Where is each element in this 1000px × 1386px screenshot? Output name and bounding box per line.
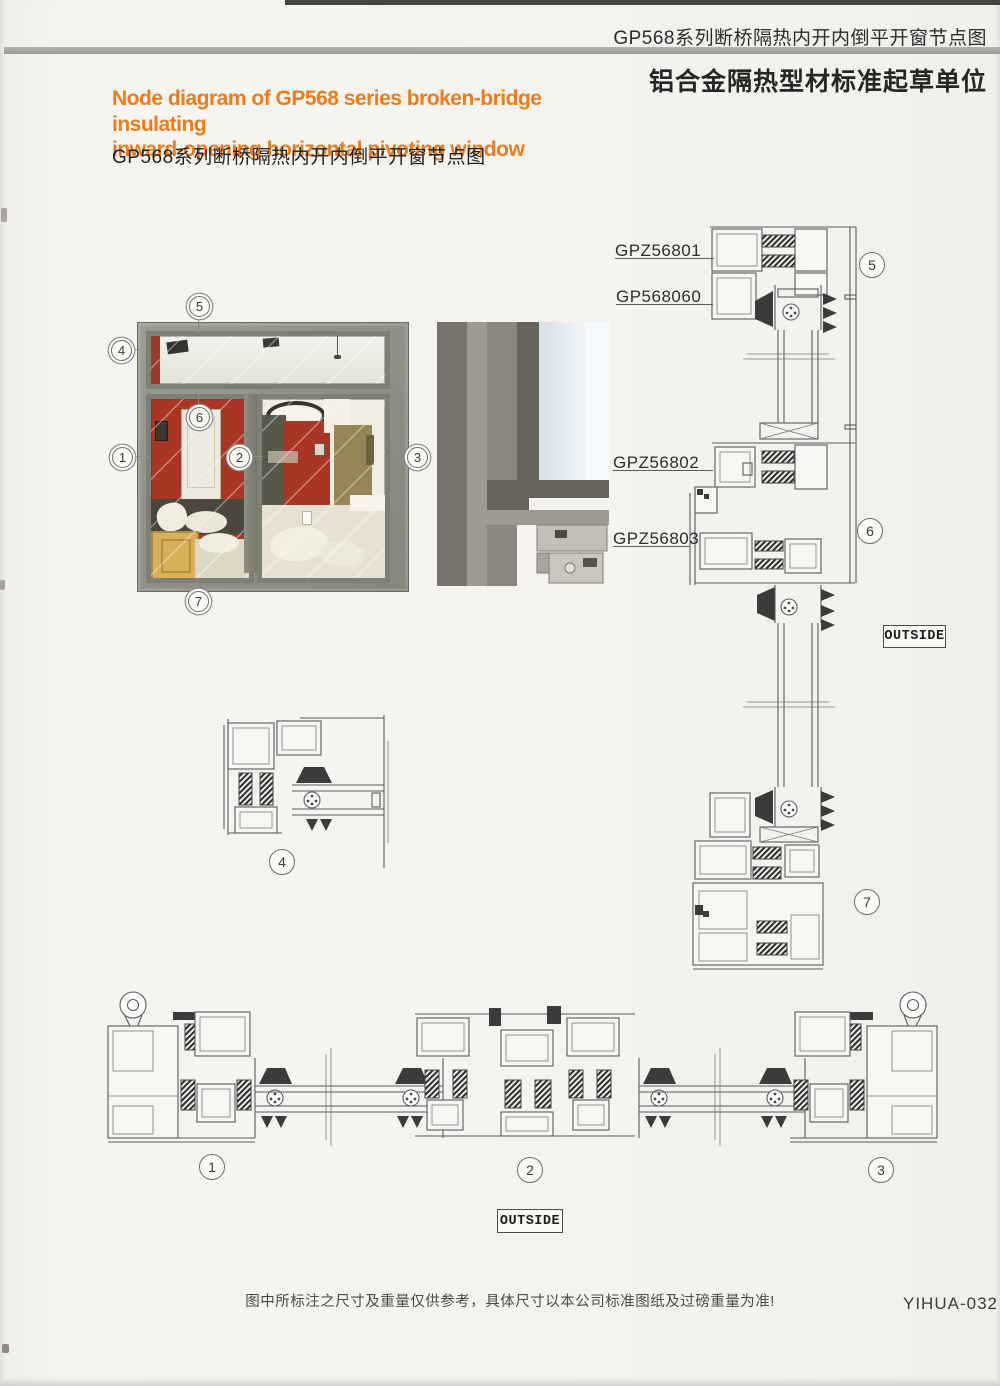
footer-note: 图中所标注之尺寸及重量仅供参考，具体尺寸以本公司标准图纸及过磅重量为准! bbox=[240, 1290, 780, 1311]
photo-red-wall bbox=[284, 421, 330, 507]
photo-callout-2: 2 bbox=[229, 447, 250, 468]
photo-cup bbox=[302, 511, 312, 525]
photo-cushion bbox=[185, 511, 227, 533]
photo-wall-frames bbox=[268, 451, 298, 463]
photo-callout-7: 7 bbox=[188, 591, 209, 612]
section-callout-7: 7 bbox=[854, 889, 880, 915]
section-callout-2: 2 bbox=[517, 1157, 543, 1183]
header-divider bbox=[4, 47, 1000, 54]
section-callout-1: 1 bbox=[199, 1154, 225, 1180]
section-callout-4: 4 bbox=[269, 849, 295, 875]
paper-edge-mark bbox=[2, 1344, 9, 1353]
outside-label-right: OUTSIDE bbox=[883, 625, 946, 648]
photo-callout-5: 5 bbox=[189, 296, 210, 317]
leader-line bbox=[198, 316, 199, 334]
catalog-page: GP568系列断桥隔热内开内倒平开窗节点图 铝合金隔热型材标准起草单位 Node… bbox=[0, 0, 1000, 1386]
photo-callout-3: 3 bbox=[407, 447, 428, 468]
photo-red-wall-sliver bbox=[151, 336, 160, 384]
window-photo bbox=[137, 322, 409, 592]
photo-lamp-wire bbox=[337, 336, 338, 356]
page-code: YIHUA-032 bbox=[903, 1294, 998, 1314]
detail-4-drawing bbox=[222, 713, 397, 878]
part-label-line bbox=[616, 304, 713, 305]
photo-small-picture bbox=[314, 443, 325, 456]
photo-right-pane bbox=[257, 394, 390, 583]
photo-ceiling-light bbox=[263, 337, 280, 347]
photo-cushion bbox=[199, 533, 239, 553]
photo-callout-1: 1 bbox=[112, 447, 133, 468]
photo-picture-frame bbox=[155, 421, 168, 441]
paper-edge-mark bbox=[1, 208, 7, 222]
org-label-cn: 铝合金隔热型材标准起草单位 bbox=[649, 62, 987, 98]
photo-bench bbox=[350, 495, 385, 511]
section-callout-6: 6 bbox=[857, 518, 883, 544]
photo-wood-chair bbox=[151, 531, 199, 582]
page-top-edge bbox=[285, 0, 1000, 5]
leader-line bbox=[132, 456, 150, 457]
page-title-cn: GP568系列断桥隔热内开内倒平开窗节点图 bbox=[112, 142, 486, 169]
corner-render-graphic bbox=[437, 322, 609, 586]
photo-ceiling-light bbox=[166, 340, 188, 355]
photo-chair-back bbox=[161, 539, 191, 573]
photo-callout-4: 4 bbox=[111, 340, 132, 361]
photo-wardrobe-edge bbox=[366, 435, 374, 465]
photo-callout-6: 6 bbox=[189, 407, 210, 428]
part-label-line bbox=[613, 546, 690, 547]
section-callout-3: 3 bbox=[868, 1157, 894, 1183]
section-callout-5: 5 bbox=[859, 252, 885, 278]
corner-profile-render bbox=[437, 322, 609, 586]
vertical-section-drawing bbox=[615, 215, 905, 980]
outside-label-bottom: OUTSIDE bbox=[497, 1209, 563, 1233]
leader-line bbox=[249, 456, 263, 457]
page-title-en-line1: Node diagram of GP568 series broken-brid… bbox=[112, 87, 541, 136]
horizontal-section-drawing bbox=[95, 988, 980, 1165]
part-label-line bbox=[613, 470, 713, 471]
leader-line bbox=[198, 390, 199, 408]
part-label-line bbox=[615, 258, 714, 259]
paper-edge-mark bbox=[0, 580, 5, 590]
photo-transom-pane bbox=[146, 331, 390, 389]
photo-lamp bbox=[334, 355, 341, 359]
photo-mullion bbox=[244, 394, 257, 573]
document-title-cn: GP568系列断桥隔热内开内倒平开窗节点图 bbox=[613, 23, 987, 50]
leader-line bbox=[131, 349, 141, 350]
